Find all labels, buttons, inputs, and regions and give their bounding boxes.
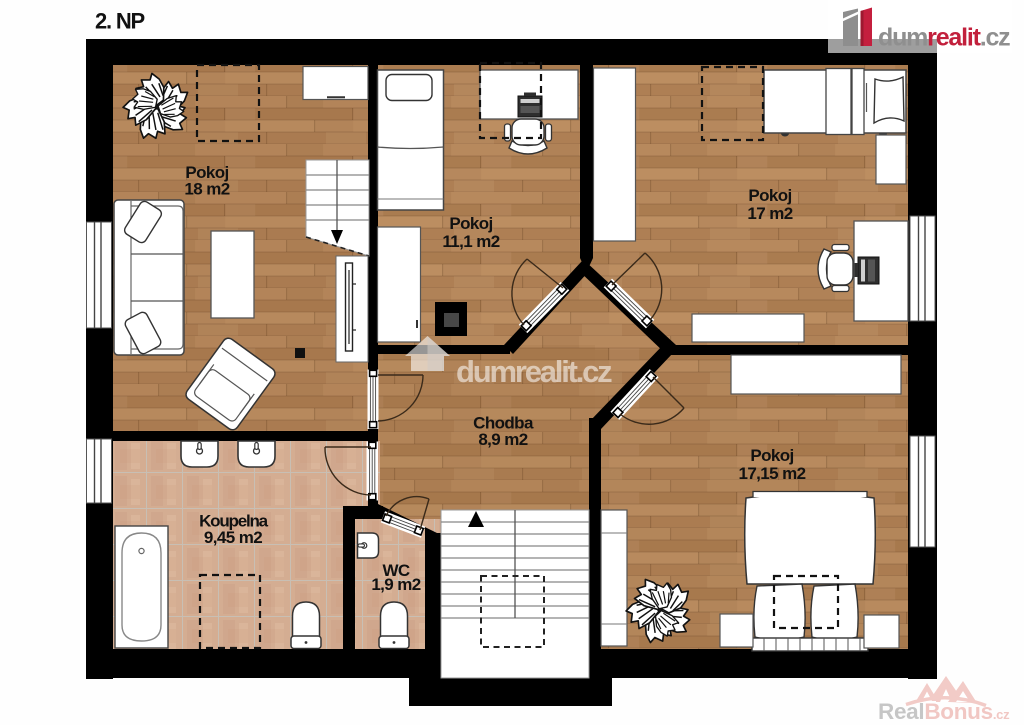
svg-text:17,15 m2: 17,15 m2 [738, 464, 805, 483]
svg-text:dumrealit.cz: dumrealit.cz [456, 354, 612, 389]
svg-text:dumrealit.cz: dumrealit.cz [878, 24, 1010, 52]
svg-text:2. NP: 2. NP [95, 9, 145, 34]
svg-text:Pokoj: Pokoj [748, 186, 791, 205]
svg-text:RealBonus.cz: RealBonus.cz [878, 699, 1010, 724]
svg-text:Pokoj: Pokoj [750, 446, 793, 465]
svg-text:17 m2: 17 m2 [747, 204, 792, 223]
svg-text:1,9 m2: 1,9 m2 [371, 575, 420, 594]
svg-text:9,45 m2: 9,45 m2 [204, 528, 262, 547]
svg-text:8,9 m2: 8,9 m2 [478, 430, 527, 449]
svg-text:Pokoj: Pokoj [449, 214, 492, 233]
svg-text:18 m2: 18 m2 [184, 180, 229, 199]
svg-text:11,1 m2: 11,1 m2 [442, 232, 499, 251]
